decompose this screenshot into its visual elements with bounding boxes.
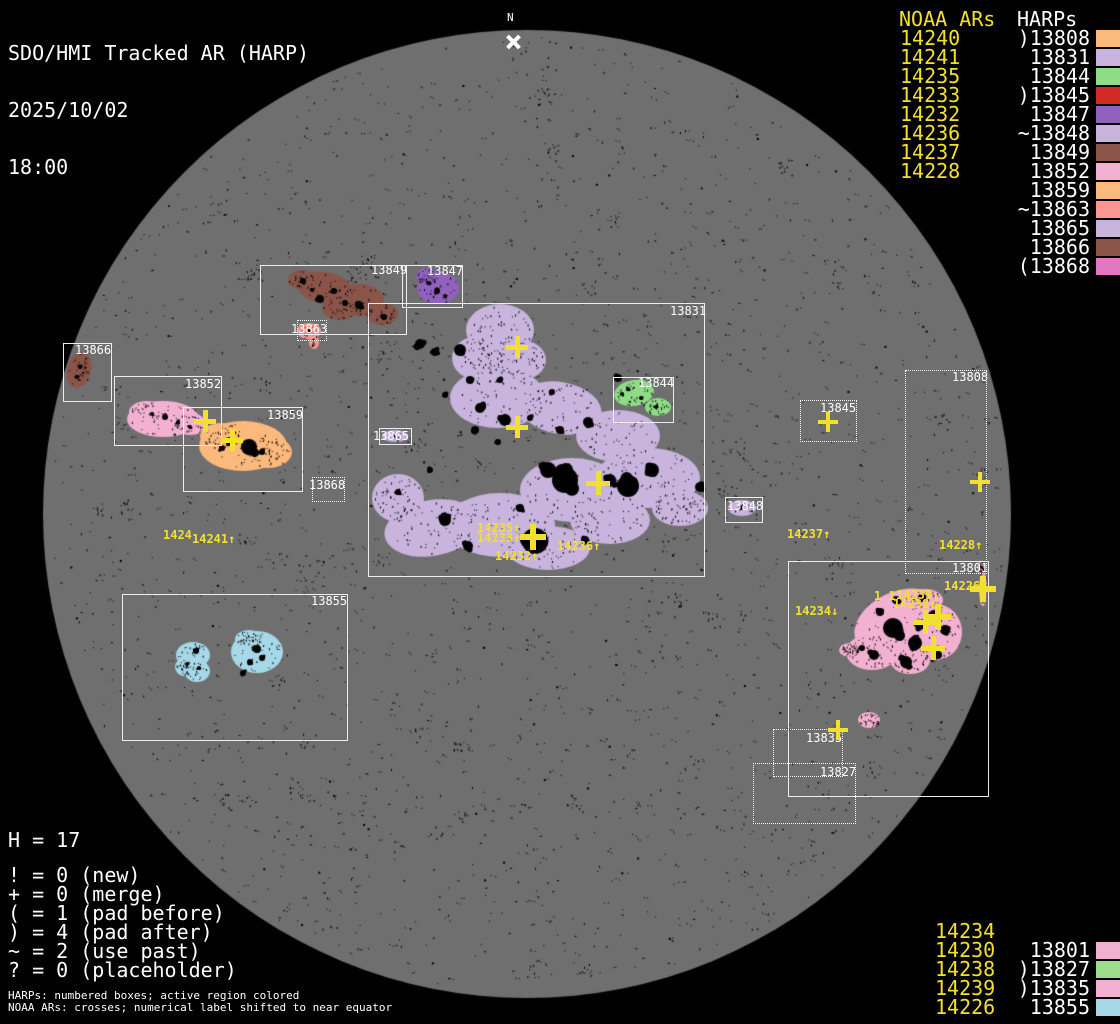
harp-visualization: 1384913847138631383113844138651386613852… bbox=[0, 0, 1120, 1024]
legend-color-swatch bbox=[1096, 239, 1120, 256]
page-title: SDO/HMI Tracked AR (HARP) bbox=[8, 44, 309, 63]
stat-placeholder: ? = 0 (placeholder) bbox=[8, 961, 237, 980]
harp-box-label-13831: 13831 bbox=[670, 305, 706, 317]
noaa-shifted-label: 14238↓ bbox=[893, 598, 936, 610]
harps-header: HARPs bbox=[1017, 10, 1077, 29]
noaa-shifted-label: 14237↑ bbox=[787, 528, 830, 540]
legend-color-swatch bbox=[1096, 144, 1120, 161]
harp-box-label-13827: 13827 bbox=[820, 766, 856, 778]
noaa-cross bbox=[221, 429, 243, 451]
noaa-cross bbox=[921, 636, 945, 660]
time-label: 18:00 bbox=[8, 158, 309, 177]
harp-box-label-13863: 13863 bbox=[291, 323, 327, 335]
noaa-shifted-label: 14226 bbox=[944, 580, 980, 592]
noaa-shifted-label: 14234↓ bbox=[795, 605, 838, 617]
legend-color-swatch bbox=[1096, 106, 1120, 123]
harp-box-label-13865: 13865 bbox=[373, 430, 409, 442]
legend-color-swatch bbox=[1096, 942, 1120, 959]
harp-box-label-13859: 13859 bbox=[267, 409, 303, 421]
legend-color-swatch bbox=[1096, 163, 1120, 180]
noaa-cross bbox=[818, 412, 838, 432]
legend-color-swatch bbox=[1096, 49, 1120, 66]
harp-box-label-13855: 13855 bbox=[311, 595, 347, 607]
noaa-shifted-label: 14236↑ bbox=[557, 540, 600, 552]
legend-noaa-14228: 14228 bbox=[900, 162, 960, 181]
noaa-cross bbox=[194, 410, 216, 432]
legend-color-swatch bbox=[1096, 182, 1120, 199]
harp-box-13855 bbox=[122, 594, 348, 741]
legend-color-swatch bbox=[1096, 87, 1120, 104]
legend-color-swatch bbox=[1096, 961, 1120, 978]
harp-box-label-13844: 13844 bbox=[638, 377, 674, 389]
title-block: SDO/HMI Tracked AR (HARP) 2025/10/02 18:… bbox=[8, 6, 309, 215]
noaa-shifted-label: 14241↑ bbox=[192, 533, 235, 545]
noaa-cross bbox=[828, 720, 848, 740]
legend-harp-13868: (13868 bbox=[1006, 257, 1090, 276]
noaa-shifted-label: 14232↑ bbox=[495, 550, 538, 562]
legend-color-swatch bbox=[1096, 999, 1120, 1016]
noaa-cross bbox=[586, 471, 610, 495]
legend-noaa-14226: 14226 bbox=[935, 998, 995, 1017]
noaa-cross bbox=[506, 336, 528, 358]
legend-color-swatch bbox=[1096, 68, 1120, 85]
harp-count: H = 17 bbox=[8, 828, 80, 852]
harp-box-label-13801: 13801 bbox=[952, 562, 988, 574]
north-x-icon bbox=[505, 33, 522, 50]
footnote-harps: HARPs: numbered boxes; active region col… bbox=[8, 990, 299, 1001]
harp-box-label-13852: 13852 bbox=[185, 378, 221, 390]
noaa-cross bbox=[506, 416, 528, 438]
legend-color-swatch bbox=[1096, 220, 1120, 237]
noaa-shifted-label: 14233↑ bbox=[477, 532, 520, 544]
legend-color-swatch bbox=[1096, 30, 1120, 47]
harp-box-label-13848: 13848 bbox=[727, 500, 763, 512]
north-label: N bbox=[507, 11, 514, 24]
noaa-cross bbox=[520, 524, 546, 550]
legend-color-swatch bbox=[1096, 125, 1120, 142]
legend-color-swatch bbox=[1096, 201, 1120, 218]
harp-box-label-13808: 13808 bbox=[952, 371, 988, 383]
footnote-noaa: NOAA ARs: crosses; numerical label shift… bbox=[8, 1002, 392, 1013]
legend-harp-13855: 13855 bbox=[1006, 998, 1090, 1017]
legend-color-swatch bbox=[1096, 258, 1120, 275]
date-label: 2025/10/02 bbox=[8, 101, 309, 120]
harp-box-label-13868: 13868 bbox=[309, 479, 345, 491]
noaa-shifted-label: 1424 bbox=[163, 529, 192, 541]
noaa-ars-header: NOAA ARs bbox=[899, 10, 995, 29]
harp-box-label-13866: 13866 bbox=[75, 344, 111, 356]
legend-color-swatch bbox=[1096, 980, 1120, 997]
noaa-cross bbox=[970, 472, 990, 492]
noaa-shifted-label: 14228↑ bbox=[939, 539, 982, 551]
harp-box-label-13847: 13847 bbox=[427, 265, 463, 277]
